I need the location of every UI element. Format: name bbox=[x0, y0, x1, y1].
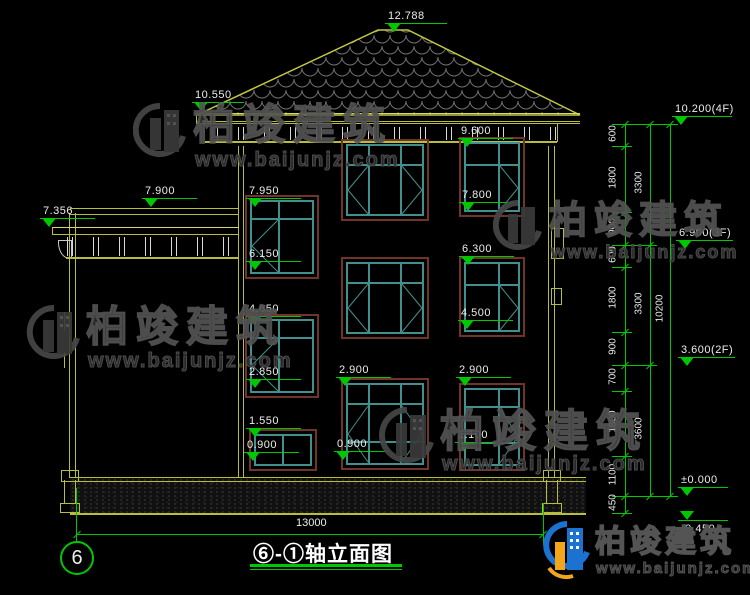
column-shaft-left bbox=[64, 480, 76, 503]
porch-bottom-line bbox=[66, 257, 238, 259]
watermark-logo-icon bbox=[26, 300, 82, 374]
triangle-icon bbox=[674, 116, 688, 125]
porch-dentils bbox=[60, 237, 238, 256]
porch-fascia bbox=[52, 227, 239, 235]
triangle-icon bbox=[42, 218, 56, 227]
triangle-icon bbox=[387, 23, 401, 32]
triangle-icon bbox=[458, 377, 472, 386]
watermark-url: www.baijunjz.com bbox=[442, 454, 647, 474]
triangle-icon bbox=[248, 428, 262, 437]
watermark-url: www.baijunjz.com bbox=[551, 243, 738, 261]
marker-label: 4.500 bbox=[461, 307, 491, 319]
marker-label: 2.900 bbox=[459, 364, 489, 376]
porch-parapet bbox=[70, 208, 238, 215]
dim-subtotal: 3300 bbox=[634, 279, 645, 329]
watermark-logo-icon bbox=[378, 402, 436, 480]
dim-total: 10200 bbox=[655, 284, 666, 334]
watermark-brand: 柏竣建筑 bbox=[440, 410, 648, 454]
marker-label: 7.900 bbox=[145, 185, 175, 197]
triangle-icon bbox=[680, 487, 694, 496]
watermark-logo-icon bbox=[133, 98, 187, 174]
bottom-dim-line bbox=[77, 534, 544, 535]
eave-right-cap bbox=[557, 123, 558, 142]
triangle-icon bbox=[144, 198, 158, 207]
watermark-brand: 柏竣建筑 bbox=[549, 202, 729, 240]
watermark: 柏竣建筑 www.baijunjz.com bbox=[493, 196, 750, 268]
watermark-url: www.baijunjz.com bbox=[88, 351, 293, 371]
watermark-brand: 柏竣建筑 bbox=[86, 306, 286, 348]
window-2f-center bbox=[341, 257, 429, 344]
site-logo: 柏竣建筑 www.baijunjz.com bbox=[543, 516, 750, 586]
axis-bubble: 6 bbox=[60, 541, 94, 575]
triangle-icon bbox=[460, 138, 474, 147]
right-wall-bracket bbox=[551, 288, 562, 305]
triangle-icon bbox=[248, 261, 262, 270]
watermark: 柏竣建筑 www.baijunjz.com bbox=[133, 96, 413, 181]
marker-label: ±0.000 bbox=[681, 474, 718, 486]
marker-label: 7.356 bbox=[43, 205, 73, 217]
watermark: 柏竣建筑 www.baijunjz.com bbox=[378, 402, 678, 484]
cad-elevation-drawing: 12.788 10.550 7.900 7.356 7.950 6.150 4.… bbox=[0, 0, 750, 595]
site-logo-icon bbox=[543, 518, 591, 582]
marker-label: 3.600(2F) bbox=[681, 344, 733, 356]
triangle-icon bbox=[680, 357, 694, 366]
marker-label: 1.550 bbox=[249, 415, 279, 427]
column-footing-left bbox=[60, 503, 80, 513]
window-2f-right bbox=[459, 257, 525, 342]
dim-value: 600 bbox=[608, 109, 619, 159]
marker-label: 9.600 bbox=[461, 125, 491, 137]
marker-label: 6.300 bbox=[462, 243, 492, 255]
triangle-icon bbox=[336, 451, 350, 460]
bottom-width-value: 13000 bbox=[296, 517, 327, 529]
column-footing-right bbox=[542, 503, 562, 513]
triangle-icon bbox=[461, 256, 475, 265]
title-underline-thin bbox=[250, 569, 402, 570]
marker-label: 10.200(4F) bbox=[675, 103, 734, 115]
title-underline bbox=[250, 564, 402, 567]
marker-label: 7.800 bbox=[462, 189, 492, 201]
watermark-logo-icon bbox=[493, 196, 543, 264]
watermark-brand: 柏竣建筑 bbox=[193, 104, 393, 146]
dim-value: 700 bbox=[608, 352, 619, 402]
marker-label: 12.788 bbox=[388, 10, 425, 22]
window-3f-left bbox=[245, 195, 319, 284]
marker-label: 0.900 bbox=[247, 439, 277, 451]
watermark: 柏竣建筑 www.baijunjz.com bbox=[26, 300, 346, 380]
marker-label: 6.150 bbox=[249, 248, 279, 260]
site-logo-brand: 柏竣建筑 bbox=[595, 526, 735, 557]
dim-value: 1800 bbox=[608, 153, 619, 203]
triangle-icon bbox=[246, 452, 260, 461]
dim-value: 1800 bbox=[608, 273, 619, 323]
watermark-url: www.baijunjz.com bbox=[195, 150, 400, 170]
site-logo-url: www.baijunjz.com bbox=[596, 561, 750, 576]
triangle-icon bbox=[248, 198, 262, 207]
triangle-icon bbox=[248, 379, 262, 388]
marker-label: 7.950 bbox=[249, 185, 279, 197]
triangle-icon bbox=[461, 202, 475, 211]
marker-label: 0.900 bbox=[337, 438, 367, 450]
triangle-icon bbox=[460, 320, 474, 329]
